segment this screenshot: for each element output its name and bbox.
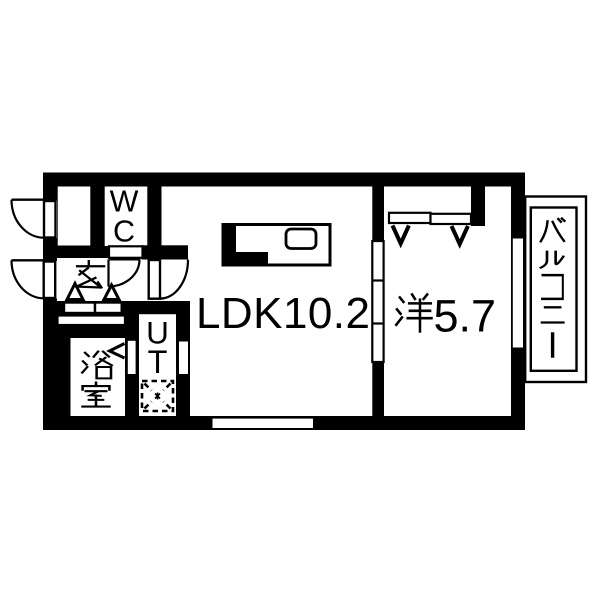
svg-text:W: W [110,185,139,219]
svg-text:LDK10.2: LDK10.2 [196,289,370,338]
svg-text:5.7: 5.7 [434,291,497,342]
svg-text:T: T [148,344,168,380]
svg-text:C: C [113,215,135,249]
